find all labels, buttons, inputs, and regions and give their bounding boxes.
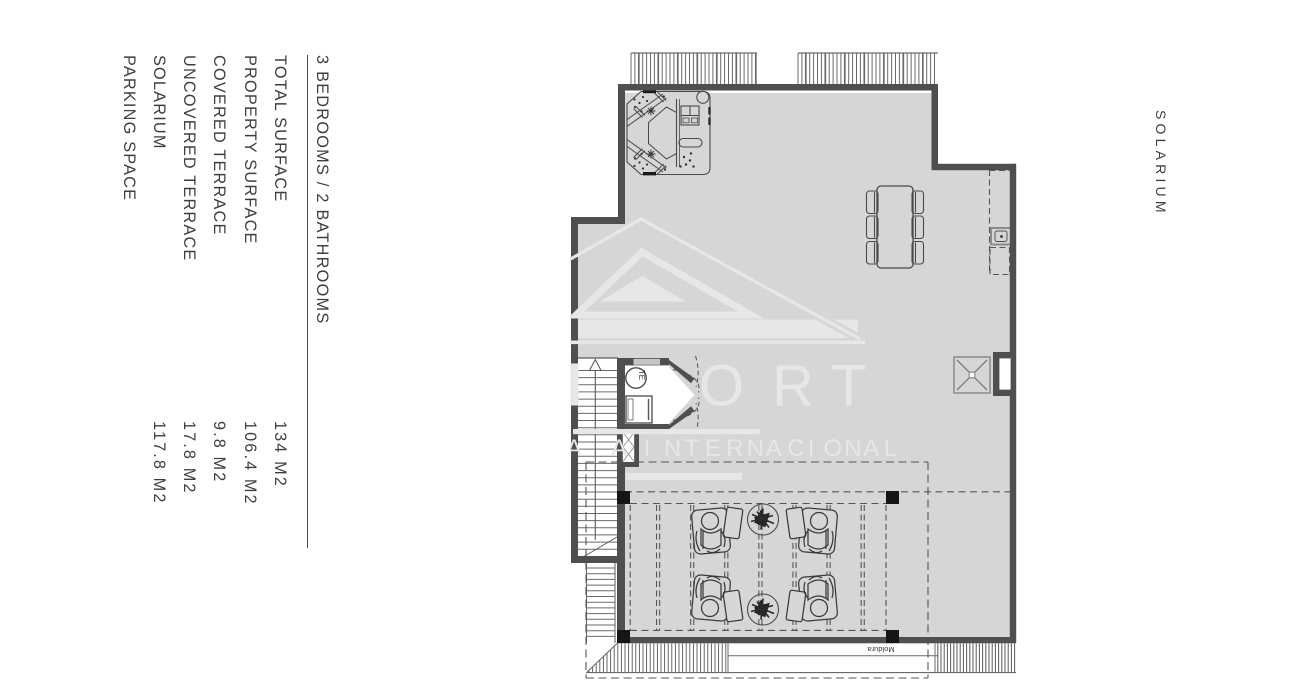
- svg-text:TE: TE: [637, 370, 646, 380]
- svg-text:Moldura: Moldura: [867, 645, 895, 654]
- svg-text:T: T: [831, 354, 866, 419]
- svg-text:O: O: [699, 354, 744, 419]
- svg-text:R: R: [772, 354, 814, 419]
